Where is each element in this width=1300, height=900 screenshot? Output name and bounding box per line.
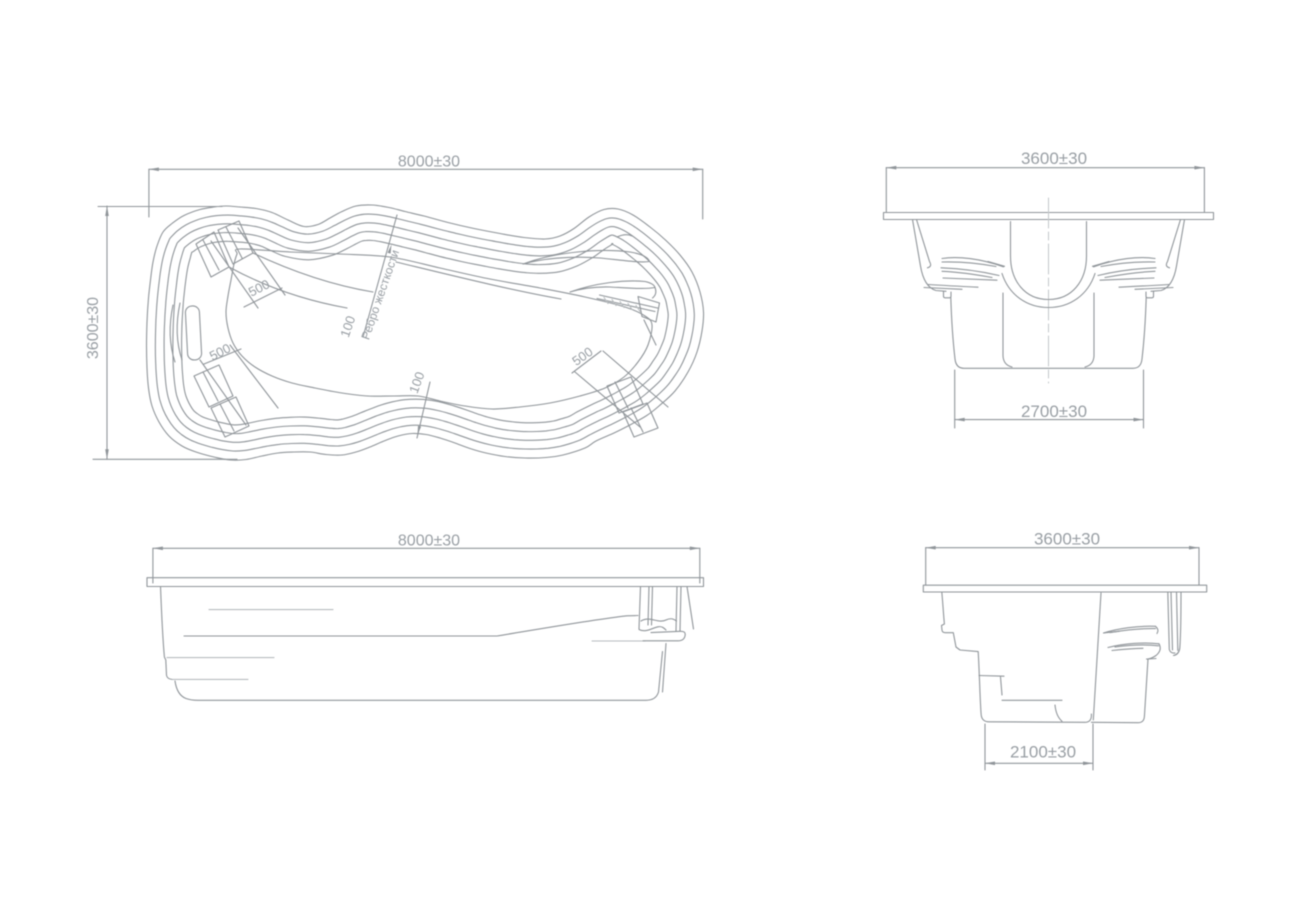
svg-text:3600±30: 3600±30 [1034,529,1100,548]
svg-text:8000±30: 8000±30 [398,153,460,170]
svg-text:2100±30: 2100±30 [1010,743,1076,762]
svg-text:8000±30: 8000±30 [398,533,460,550]
svg-text:2700±30: 2700±30 [1021,402,1087,421]
svg-text:3600±30: 3600±30 [85,297,102,359]
svg-text:3600±30: 3600±30 [1021,149,1087,168]
